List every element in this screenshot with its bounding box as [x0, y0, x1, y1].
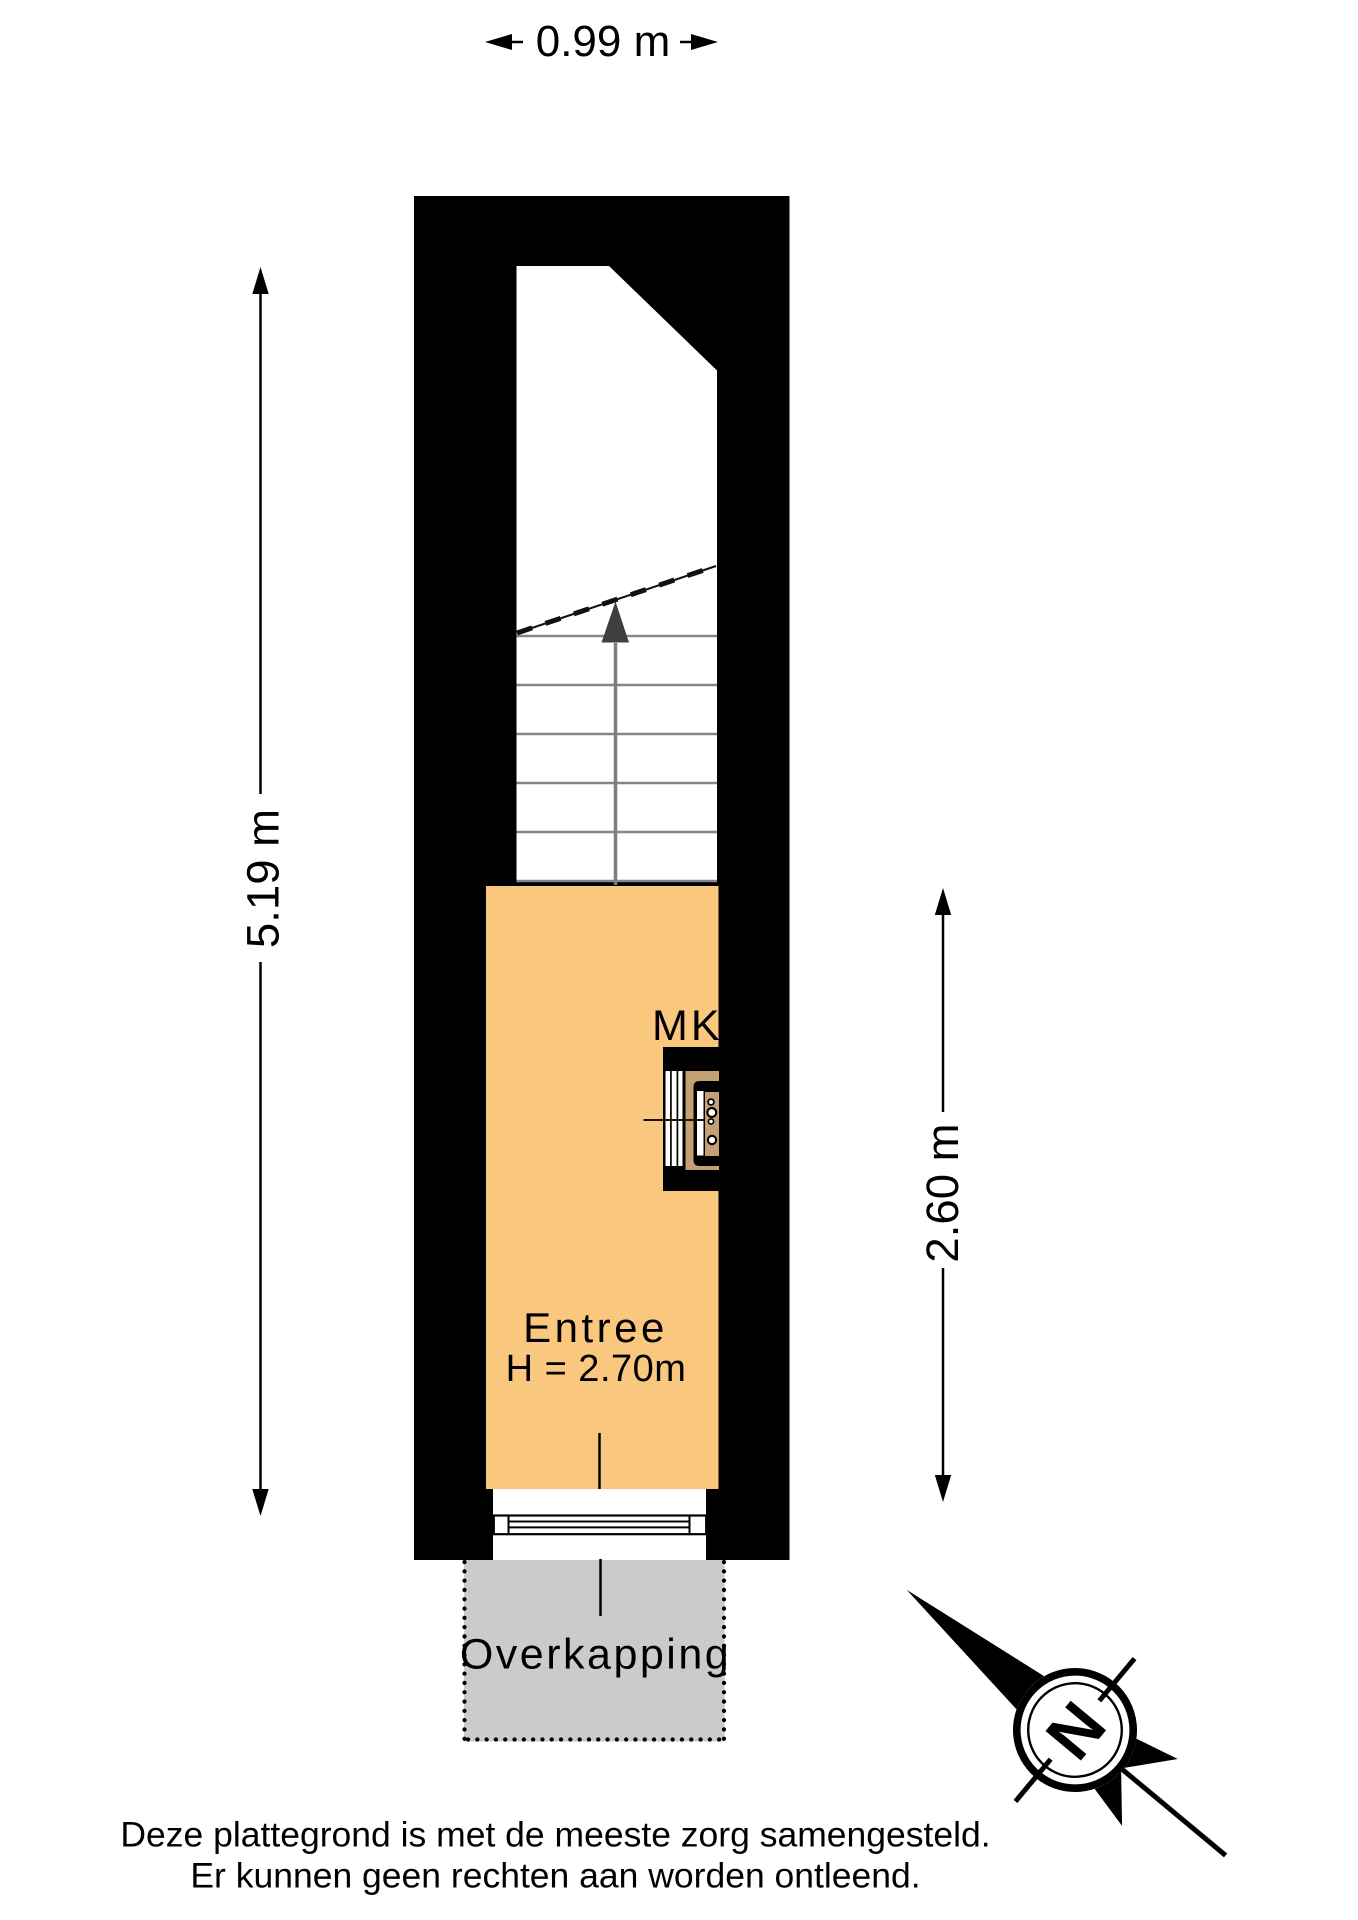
svg-text:Deze plattegrond is met de mee: Deze plattegrond is met de meeste zorg s…: [120, 1815, 990, 1855]
svg-text:Entree: Entree: [523, 1304, 668, 1351]
svg-text:MK: MK: [652, 1002, 723, 1050]
svg-text:Overkapping: Overkapping: [460, 1631, 731, 1679]
svg-text:5.19 m: 5.19 m: [238, 809, 289, 948]
svg-text:H = 2.70m: H = 2.70m: [506, 1348, 687, 1390]
svg-text:2.60 m: 2.60 m: [917, 1123, 968, 1262]
svg-text:Er kunnen geen rechten aan wor: Er kunnen geen rechten aan worden ontlee…: [190, 1856, 920, 1896]
svg-text:0.99 m: 0.99 m: [536, 17, 671, 66]
